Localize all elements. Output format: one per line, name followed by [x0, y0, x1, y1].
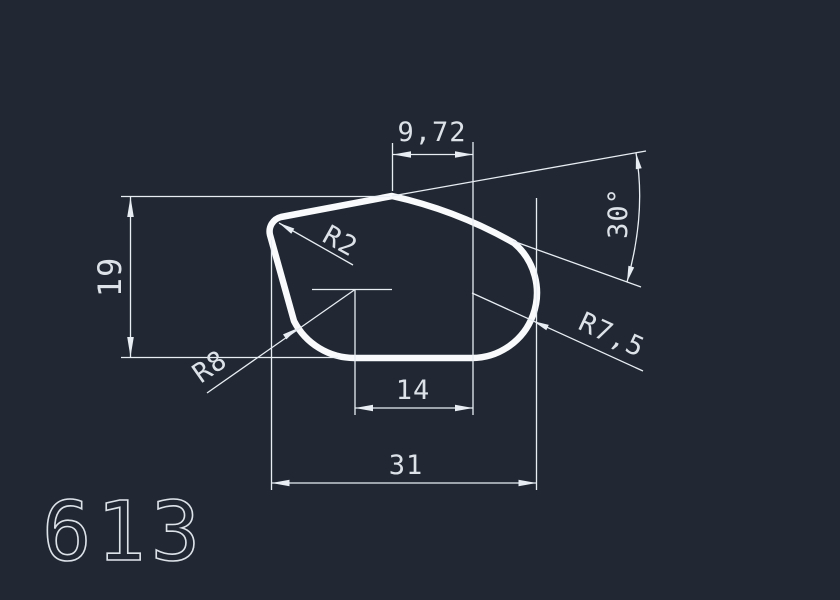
cad-drawing: 9,72 19 14 31 30° R2: [0, 0, 840, 600]
dim-text-height-left: 19: [91, 257, 129, 298]
part-number-text: 613: [42, 485, 205, 580]
part-number-label: 613: [42, 485, 205, 580]
dim-text-width-top: 9,72: [397, 117, 466, 148]
dim-text-width-mid: 14: [396, 375, 431, 406]
dim-text-width-total: 31: [389, 450, 424, 481]
dim-text-angle: 30°: [603, 187, 634, 239]
cad-canvas: 9,72 19 14 31 30° R2: [0, 0, 840, 600]
